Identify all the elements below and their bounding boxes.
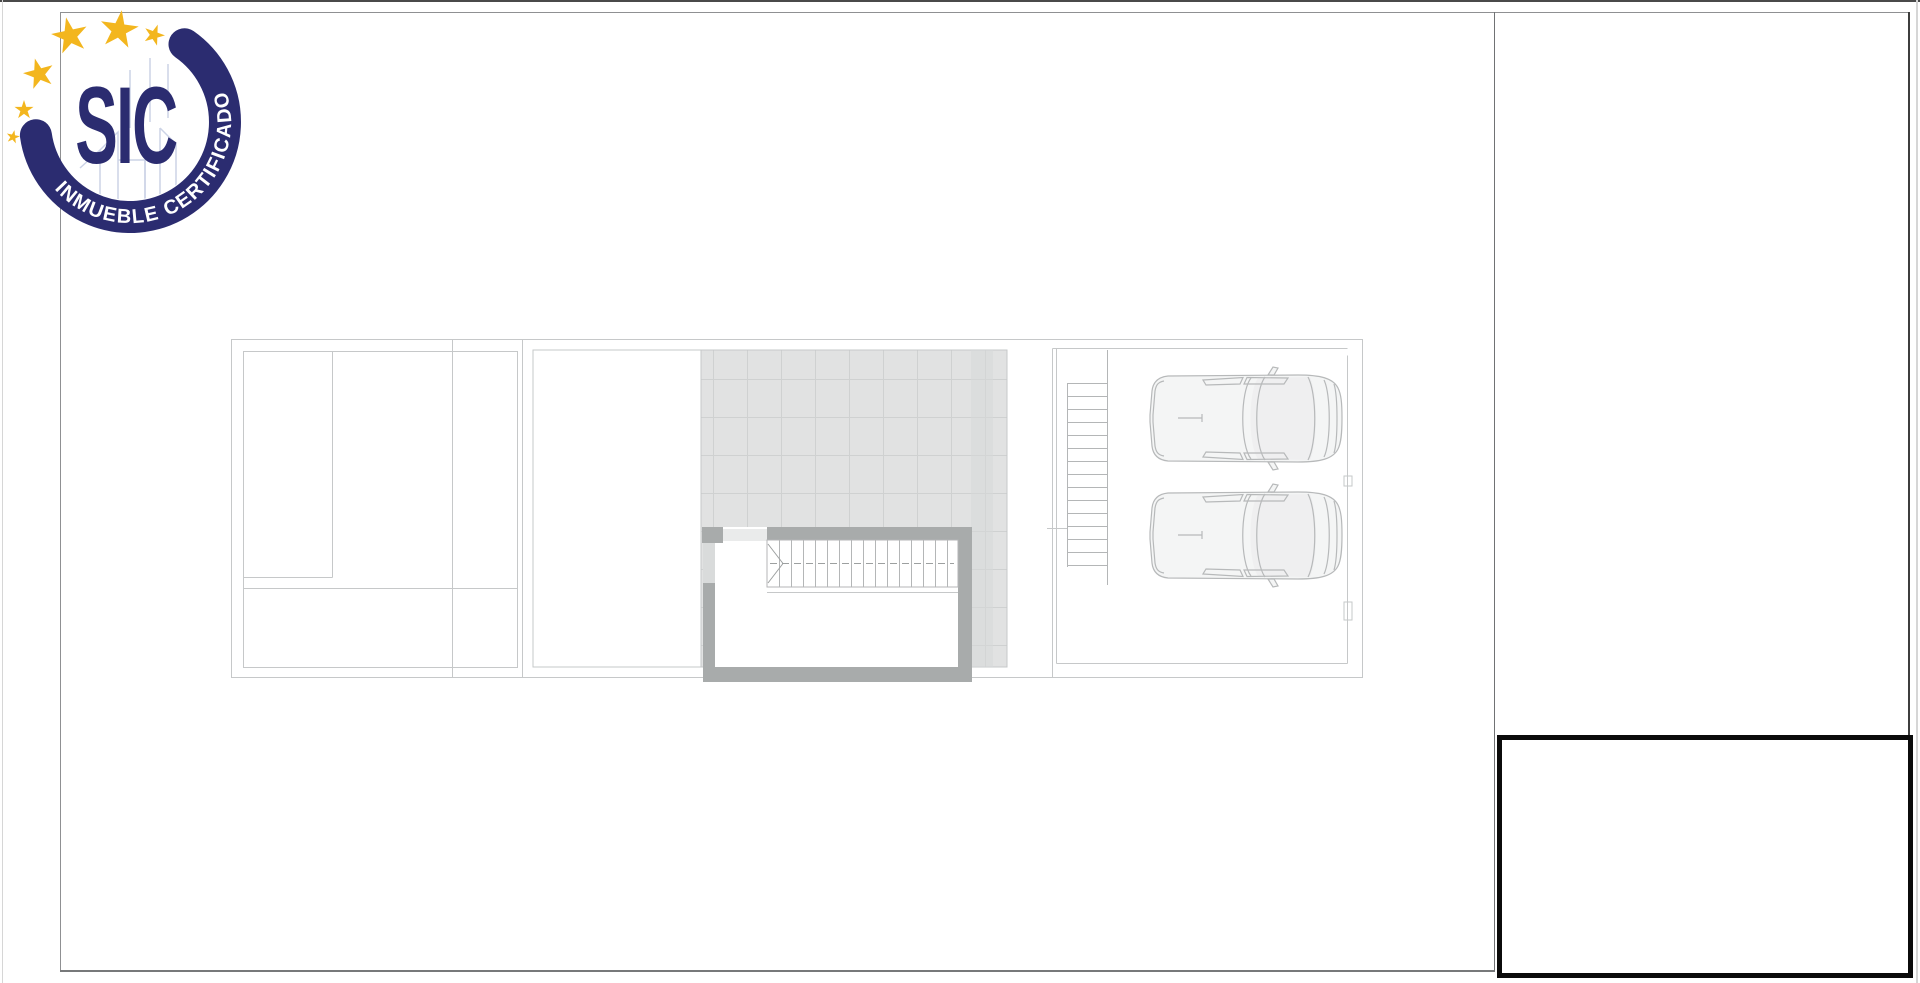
gravel-hatch-area: [533, 350, 701, 667]
stairwell: [702, 527, 972, 682]
page-right-edge-line: [1916, 0, 1918, 983]
door-leaf: [703, 543, 715, 583]
star-icon: [98, 8, 141, 49]
sheet-top-edge-line: [0, 0, 1920, 2]
star-icon: [48, 14, 90, 55]
floor-plan: [228, 333, 1368, 685]
drawing-frame-top: [60, 12, 1909, 13]
roof-beam-strip: [971, 350, 993, 667]
star-icon: [141, 21, 167, 47]
star-icon: [20, 55, 57, 91]
star-icon: [5, 129, 21, 144]
certified-plan-page: { "page": { "background": "#ffffff" }, "…: [0, 0, 1920, 983]
ladder: [1067, 350, 1108, 585]
car-top-view-icon: [1150, 367, 1342, 470]
parking-court: [1047, 349, 1352, 678]
title-block: [1497, 735, 1913, 978]
drawing-frame-right: [1908, 12, 1910, 735]
car-top-view-icon: [1150, 484, 1342, 587]
sheet-divider-line: [1494, 12, 1495, 971]
logo-brand-text: SIC: [75, 65, 176, 187]
stair-landing: [723, 529, 767, 541]
certification-logo: SIC INMUEBLE CERTIFICADO: [0, 0, 270, 255]
star-icon: [14, 100, 33, 118]
drawing-frame-bottom: [60, 970, 1495, 972]
